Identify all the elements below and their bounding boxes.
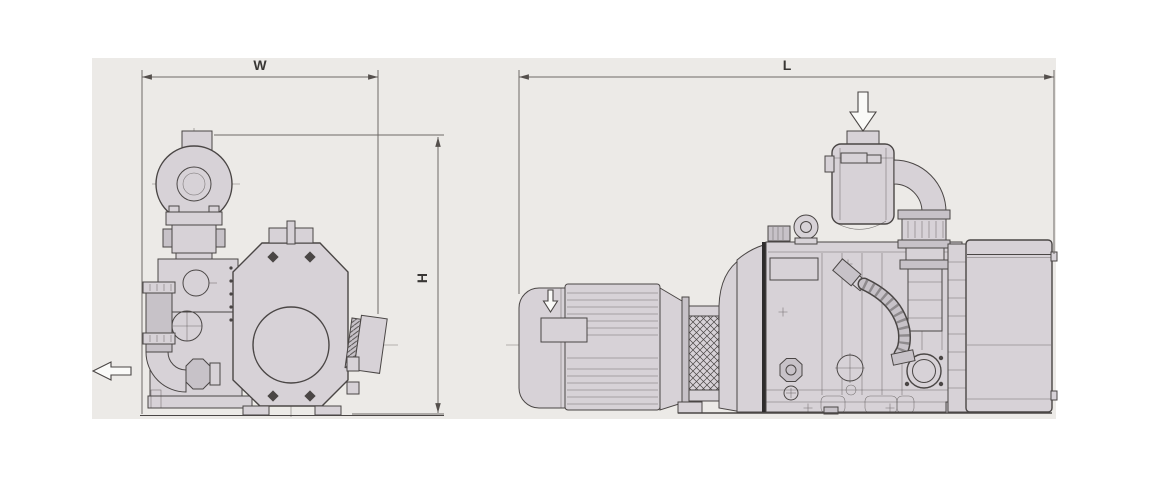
tank-shell [966, 240, 1052, 412]
dimension-label-w: W [253, 57, 267, 73]
pump-nameplate [770, 258, 818, 280]
drawing-canvas: W H L [0, 0, 1160, 480]
inlet-port [847, 131, 879, 144]
oil-sight-glass [780, 359, 802, 382]
technical-drawing: W H L [0, 0, 1160, 480]
foot [315, 406, 341, 415]
motor [519, 284, 702, 413]
foot [678, 402, 702, 413]
motor-adapter [660, 288, 682, 410]
lifting-eyebolt [794, 215, 818, 239]
foot [243, 406, 269, 415]
fan-cowl [519, 288, 565, 408]
motor-body [565, 284, 660, 410]
motor-nameplate [541, 318, 587, 342]
dimension-label-h: H [414, 273, 430, 283]
oil-tank [948, 240, 1057, 412]
filter-clamp [825, 156, 834, 172]
dimension-label-l: L [783, 57, 792, 73]
hex-fitting [186, 359, 210, 389]
oil-fill-cap [768, 226, 790, 241]
spacer-column [948, 244, 968, 412]
top-lug [287, 221, 295, 244]
